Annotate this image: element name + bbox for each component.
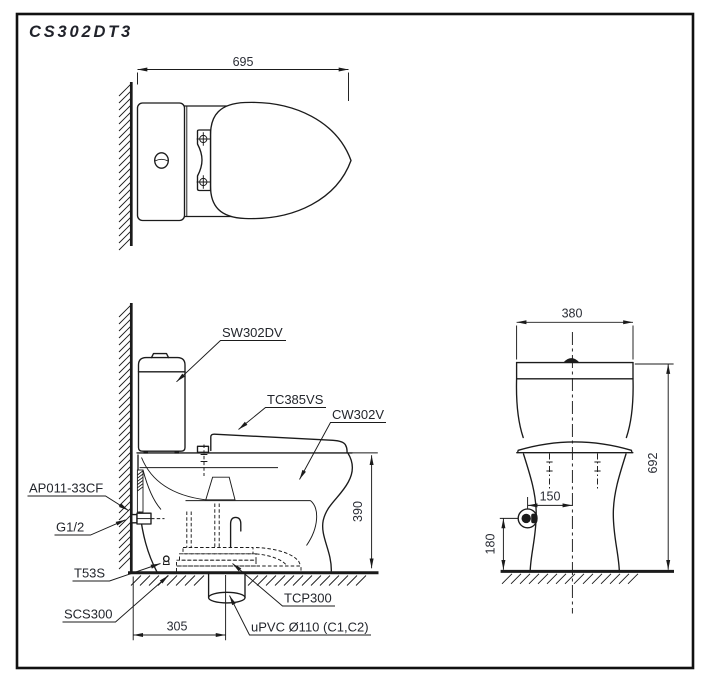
- outlet-elbow: [256, 548, 301, 567]
- callout-supply-thread: G1/2: [55, 520, 126, 536]
- dim-695: 695: [138, 55, 349, 101]
- seat-outline-plan: [211, 102, 352, 218]
- label-ap011-33cf: AP011-33CF: [29, 481, 103, 496]
- dim-692: 692: [635, 364, 674, 570]
- front-view: 380 150: [484, 307, 674, 614]
- technical-drawing-canvas: CS302DT3 695: [0, 0, 711, 682]
- dim-text-180: 180: [484, 534, 498, 555]
- floor-hatch-front: [502, 574, 638, 584]
- floor-hatch-side-right: [248, 576, 366, 586]
- dim-text-692: 692: [646, 453, 660, 474]
- outlet-band: [177, 560, 257, 566]
- label-scs300: SCS300: [64, 607, 112, 622]
- callout-supply-valve: AP011-33CF: [28, 481, 129, 511]
- callout-bowl: CW302V: [300, 407, 387, 480]
- dim-text-390: 390: [351, 501, 365, 522]
- bowl-front-profile: [323, 453, 353, 571]
- seat-bolt-hidden: [594, 454, 600, 490]
- seat-cover-front: [518, 442, 632, 453]
- valve-hidden-lines: [187, 504, 219, 548]
- seat-cover-outline-side: [211, 434, 347, 452]
- dim-text-695: 695: [233, 55, 254, 69]
- floor-bolt-icon: [163, 556, 169, 564]
- dim-text-150: 150: [540, 489, 561, 503]
- drawing-sheet: CS302DT3 695: [0, 0, 711, 682]
- flush-valve-funnel: [206, 477, 235, 500]
- label-cw302v: CW302V: [332, 407, 384, 422]
- dim-390: 390: [351, 453, 378, 568]
- wall-hatch-side: [119, 305, 131, 569]
- push-button-icon: [564, 358, 580, 362]
- label-g12: G1/2: [56, 520, 84, 535]
- dim-305: 305: [133, 575, 225, 640]
- callout-tank: SW302DV: [177, 325, 287, 382]
- tank-body-front: [516, 379, 633, 438]
- label-sw302dv: SW302DV: [222, 325, 283, 340]
- callout-outlet-socket: TCP300: [233, 564, 336, 607]
- label-upvc: uPVC Ø110 (C1,C2): [251, 620, 369, 635]
- tank-lid-band-front: [517, 363, 633, 379]
- tank-outline-plan: [138, 103, 185, 221]
- plan-view: 695: [119, 55, 351, 250]
- label-t53s: T53S: [74, 566, 105, 581]
- outlet-band: [180, 554, 257, 560]
- bowl-back-inner-line: [143, 470, 161, 510]
- label-tcp300: TCP300: [284, 591, 332, 606]
- callout-seat-cover: TC385VS: [239, 392, 327, 430]
- pedestal-outline: [524, 454, 627, 571]
- overflow-pipe: [231, 517, 241, 547]
- dim-180: 180: [484, 518, 519, 569]
- supply-valve-icon: [132, 513, 165, 524]
- seat-hinge-block-side: [198, 446, 209, 452]
- supply-connection-icon: [518, 509, 537, 528]
- page-title: CS302DT3: [29, 23, 133, 41]
- dim-text-305: 305: [167, 620, 188, 634]
- side-view: 390 305 SW302DV TC385VS CW302V AP011-33C…: [28, 303, 387, 640]
- bowl-back-section-hatch: [137, 471, 143, 491]
- dim-text-380: 380: [562, 307, 583, 321]
- seat-bolt-hidden: [546, 454, 552, 490]
- drain-pipe-outline: [209, 574, 245, 603]
- wall-hatch-plan: [119, 84, 131, 250]
- bowl-inner-right-curve: [307, 501, 317, 546]
- label-tc385vs: TC385VS: [267, 392, 324, 407]
- dim-380: 380: [517, 307, 633, 360]
- outlet-band: [183, 548, 253, 554]
